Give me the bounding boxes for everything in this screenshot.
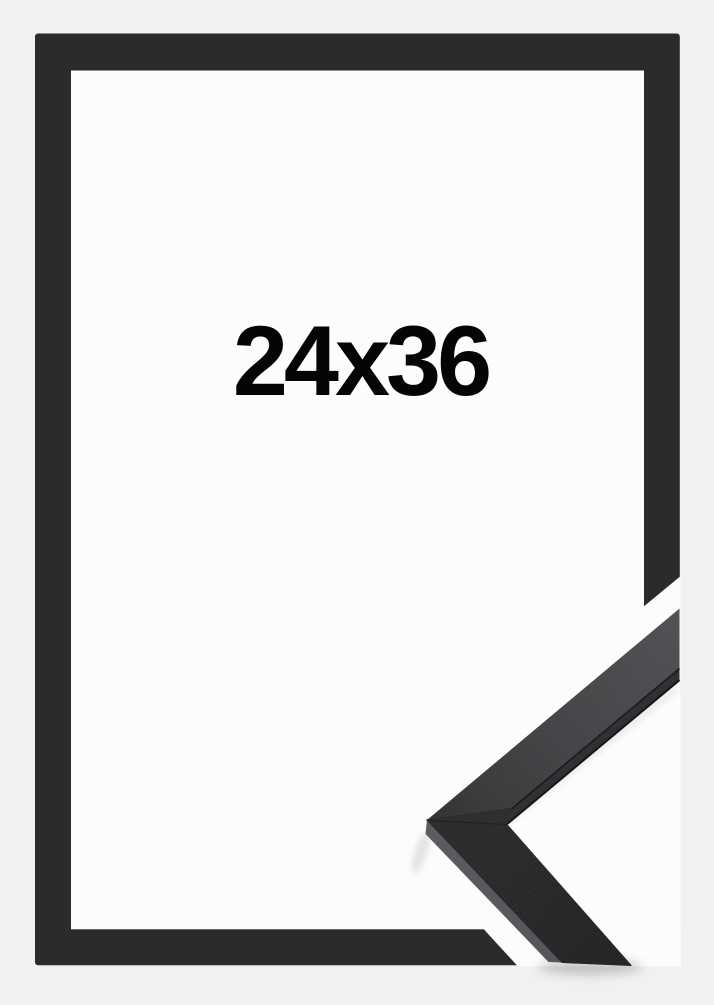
svg-text:24x36: 24x36 xyxy=(233,305,489,416)
